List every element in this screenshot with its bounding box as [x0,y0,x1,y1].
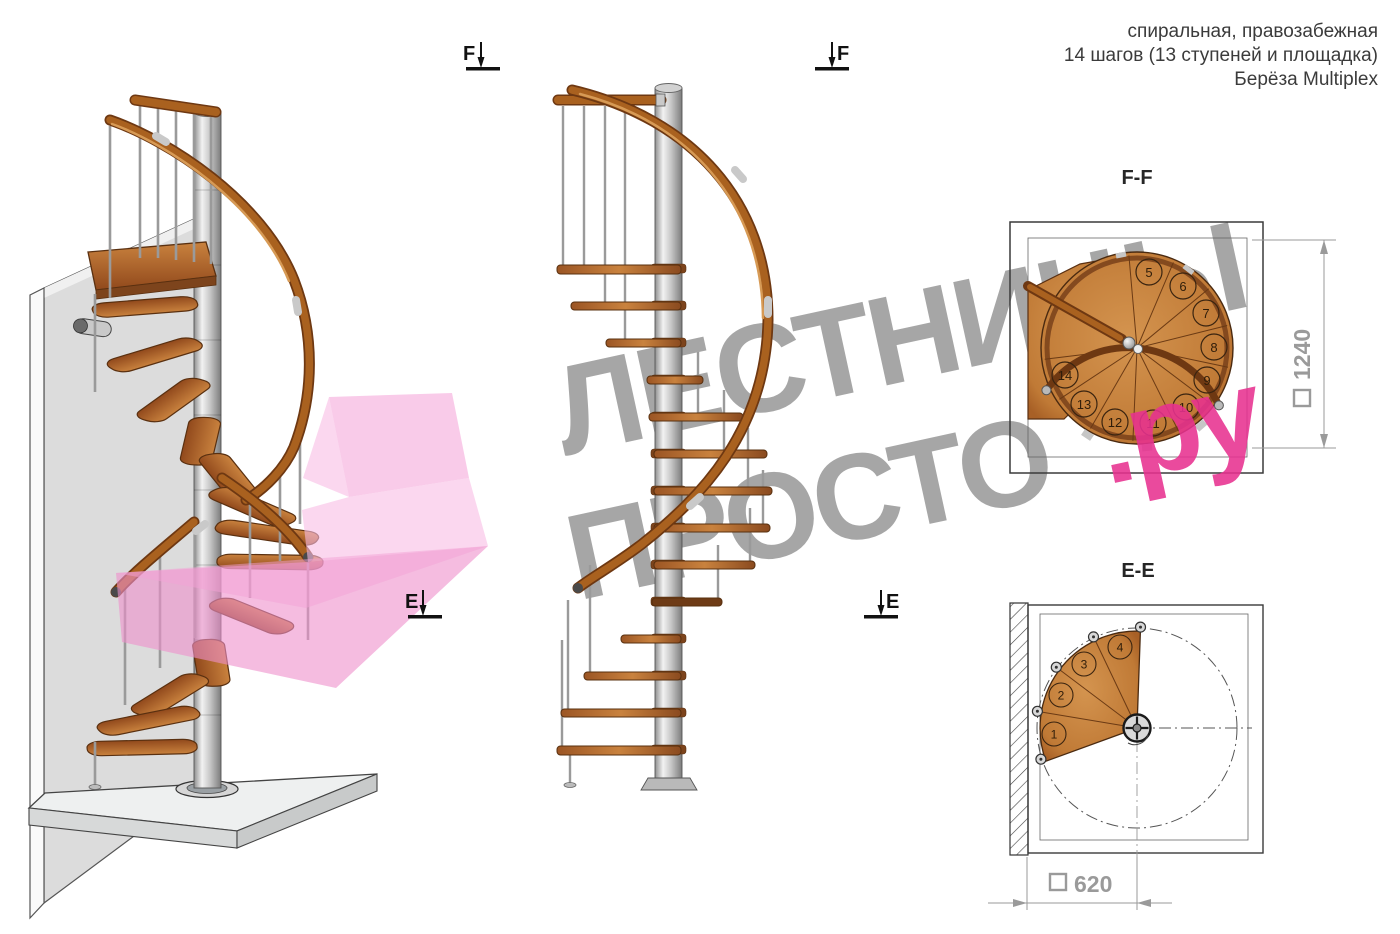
spec-line-material: Берёза Multiplex [1064,68,1378,92]
svg-text:F: F [837,43,849,65]
drawing-canvas: ЛЕСТНИЦЫ ПРОСТО [0,0,1400,934]
svg-text:E: E [405,591,418,613]
section-marker-e-left: E [405,590,442,619]
spec-line-steps: 14 шагов (13 ступеней и площадка) [1064,44,1378,68]
section-marker-f-right: F [815,42,849,71]
svg-text:E: E [886,591,899,613]
stair-spec-text: спиральная, правозабежная 14 шагов (13 с… [1064,20,1378,92]
svg-text:F: F [463,43,475,65]
section-marker-e-right: E [864,590,899,619]
section-marker-f-left: F [463,42,500,71]
spec-line-type: спиральная, правозабежная [1064,20,1378,44]
section-cut-markers: F F E E [0,0,1400,934]
